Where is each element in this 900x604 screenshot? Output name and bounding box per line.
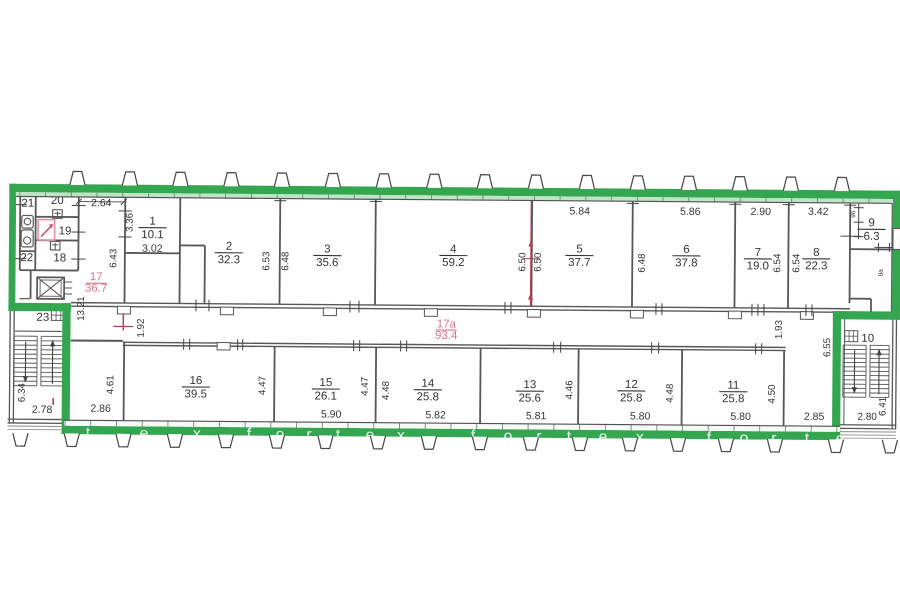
svg-text:4.48: 4.48 (381, 380, 392, 400)
svg-text:37.8: 37.8 (675, 257, 697, 269)
svg-text:9а: 9а (878, 269, 885, 277)
svg-text:19: 19 (59, 225, 72, 237)
svg-text:13.21: 13.21 (76, 296, 87, 321)
svg-text:x: x (636, 429, 644, 446)
svg-text:5.82: 5.82 (425, 409, 446, 421)
svg-text:1.93: 1.93 (774, 319, 785, 339)
svg-text:1.92: 1.92 (136, 318, 147, 337)
svg-text:6.50: 6.50 (517, 252, 528, 272)
svg-text:2.80: 2.80 (857, 412, 877, 423)
svg-text:2.64: 2.64 (91, 197, 112, 209)
svg-text:o: o (504, 428, 513, 445)
svg-text:5.84: 5.84 (569, 205, 590, 217)
svg-text:19.0: 19.0 (747, 260, 769, 272)
svg-text:6: 6 (683, 244, 690, 256)
svg-text:6.48: 6.48 (637, 253, 648, 273)
svg-text:26.1: 26.1 (315, 390, 337, 402)
svg-text:13: 13 (523, 379, 536, 391)
svg-text:25.6: 25.6 (519, 393, 541, 405)
svg-text:21: 21 (21, 198, 34, 210)
svg-text:37.7: 37.7 (568, 257, 590, 269)
svg-text:93.4: 93.4 (435, 330, 458, 342)
svg-text:6.41: 6.41 (878, 397, 889, 416)
svg-text:39.5: 39.5 (185, 388, 207, 400)
svg-text:17: 17 (90, 271, 103, 283)
svg-text:18: 18 (53, 252, 66, 264)
svg-text:7: 7 (755, 247, 762, 259)
svg-text:23: 23 (36, 312, 49, 324)
svg-text:32.3: 32.3 (218, 254, 240, 266)
svg-text:35.6: 35.6 (316, 257, 338, 269)
svg-text:6.34: 6.34 (17, 383, 28, 403)
svg-text:6.48: 6.48 (280, 251, 291, 271)
svg-text:4.47: 4.47 (360, 377, 371, 396)
svg-text:2.85: 2.85 (804, 411, 825, 423)
svg-text:4.61: 4.61 (105, 375, 116, 394)
svg-text:x: x (397, 427, 405, 444)
svg-text:5.86: 5.86 (680, 206, 701, 218)
svg-text:22: 22 (20, 252, 33, 264)
svg-text:3.02: 3.02 (142, 243, 163, 255)
svg-text:5: 5 (576, 243, 583, 255)
svg-text:2.86: 2.86 (90, 403, 111, 415)
svg-text:4.47: 4.47 (257, 376, 268, 395)
svg-text:25.8: 25.8 (620, 392, 642, 404)
svg-text:2.78: 2.78 (32, 404, 53, 416)
svg-text:6.54: 6.54 (791, 253, 802, 273)
svg-text:6.43: 6.43 (108, 248, 119, 268)
svg-text:8: 8 (813, 247, 820, 259)
svg-text:5.90: 5.90 (321, 408, 342, 420)
svg-text:4.46: 4.46 (564, 380, 575, 400)
svg-text:36.7: 36.7 (85, 283, 107, 295)
svg-text:22.3: 22.3 (805, 260, 827, 272)
svg-text:e: e (140, 425, 149, 442)
svg-text:5.80: 5.80 (630, 410, 651, 422)
svg-text:1: 1 (149, 216, 156, 228)
svg-text:6.53: 6.53 (261, 251, 272, 271)
svg-text:3: 3 (324, 244, 331, 256)
svg-text:2: 2 (226, 241, 233, 253)
svg-text:4.50: 4.50 (767, 384, 778, 404)
svg-text:15: 15 (319, 377, 332, 389)
svg-text:11: 11 (727, 380, 739, 392)
svg-text:16: 16 (189, 375, 202, 387)
svg-text:5.80: 5.80 (730, 411, 751, 423)
svg-text:5.81: 5.81 (526, 410, 547, 422)
svg-text:3.36: 3.36 (125, 212, 136, 232)
svg-text:2.90: 2.90 (750, 206, 771, 218)
svg-text:6.50: 6.50 (533, 252, 544, 272)
svg-text:9: 9 (868, 217, 875, 229)
svg-text:x: x (193, 425, 201, 442)
svg-text:14: 14 (421, 378, 434, 390)
svg-text:59.2: 59.2 (442, 257, 464, 269)
svg-text:r: r (306, 426, 311, 443)
svg-text:25.8: 25.8 (417, 391, 439, 403)
svg-text:4: 4 (450, 244, 457, 256)
svg-text:e: e (599, 429, 608, 446)
svg-text:6.54: 6.54 (772, 253, 783, 273)
svg-text:17а: 17а (437, 318, 457, 330)
svg-text:10: 10 (861, 333, 874, 345)
svg-text:o: o (740, 430, 749, 447)
svg-text:9б: 9б (849, 210, 857, 218)
svg-text:25.8: 25.8 (722, 393, 744, 405)
svg-text:6.55: 6.55 (822, 337, 833, 357)
svg-text:6.3: 6.3 (863, 231, 879, 243)
svg-text:3.42: 3.42 (808, 206, 829, 218)
svg-text:12: 12 (625, 379, 638, 391)
svg-text:4.48: 4.48 (665, 383, 676, 403)
svg-text:10.1: 10.1 (141, 229, 163, 241)
